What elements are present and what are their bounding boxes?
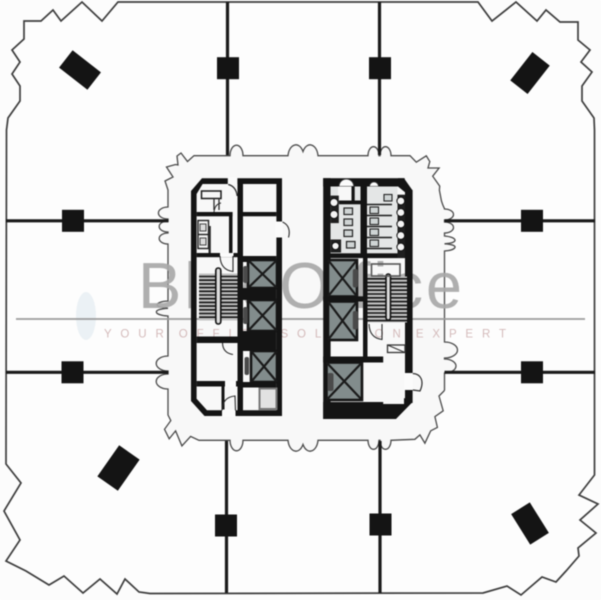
svg-text:BlueOffice: BlueOffice [138, 249, 462, 322]
